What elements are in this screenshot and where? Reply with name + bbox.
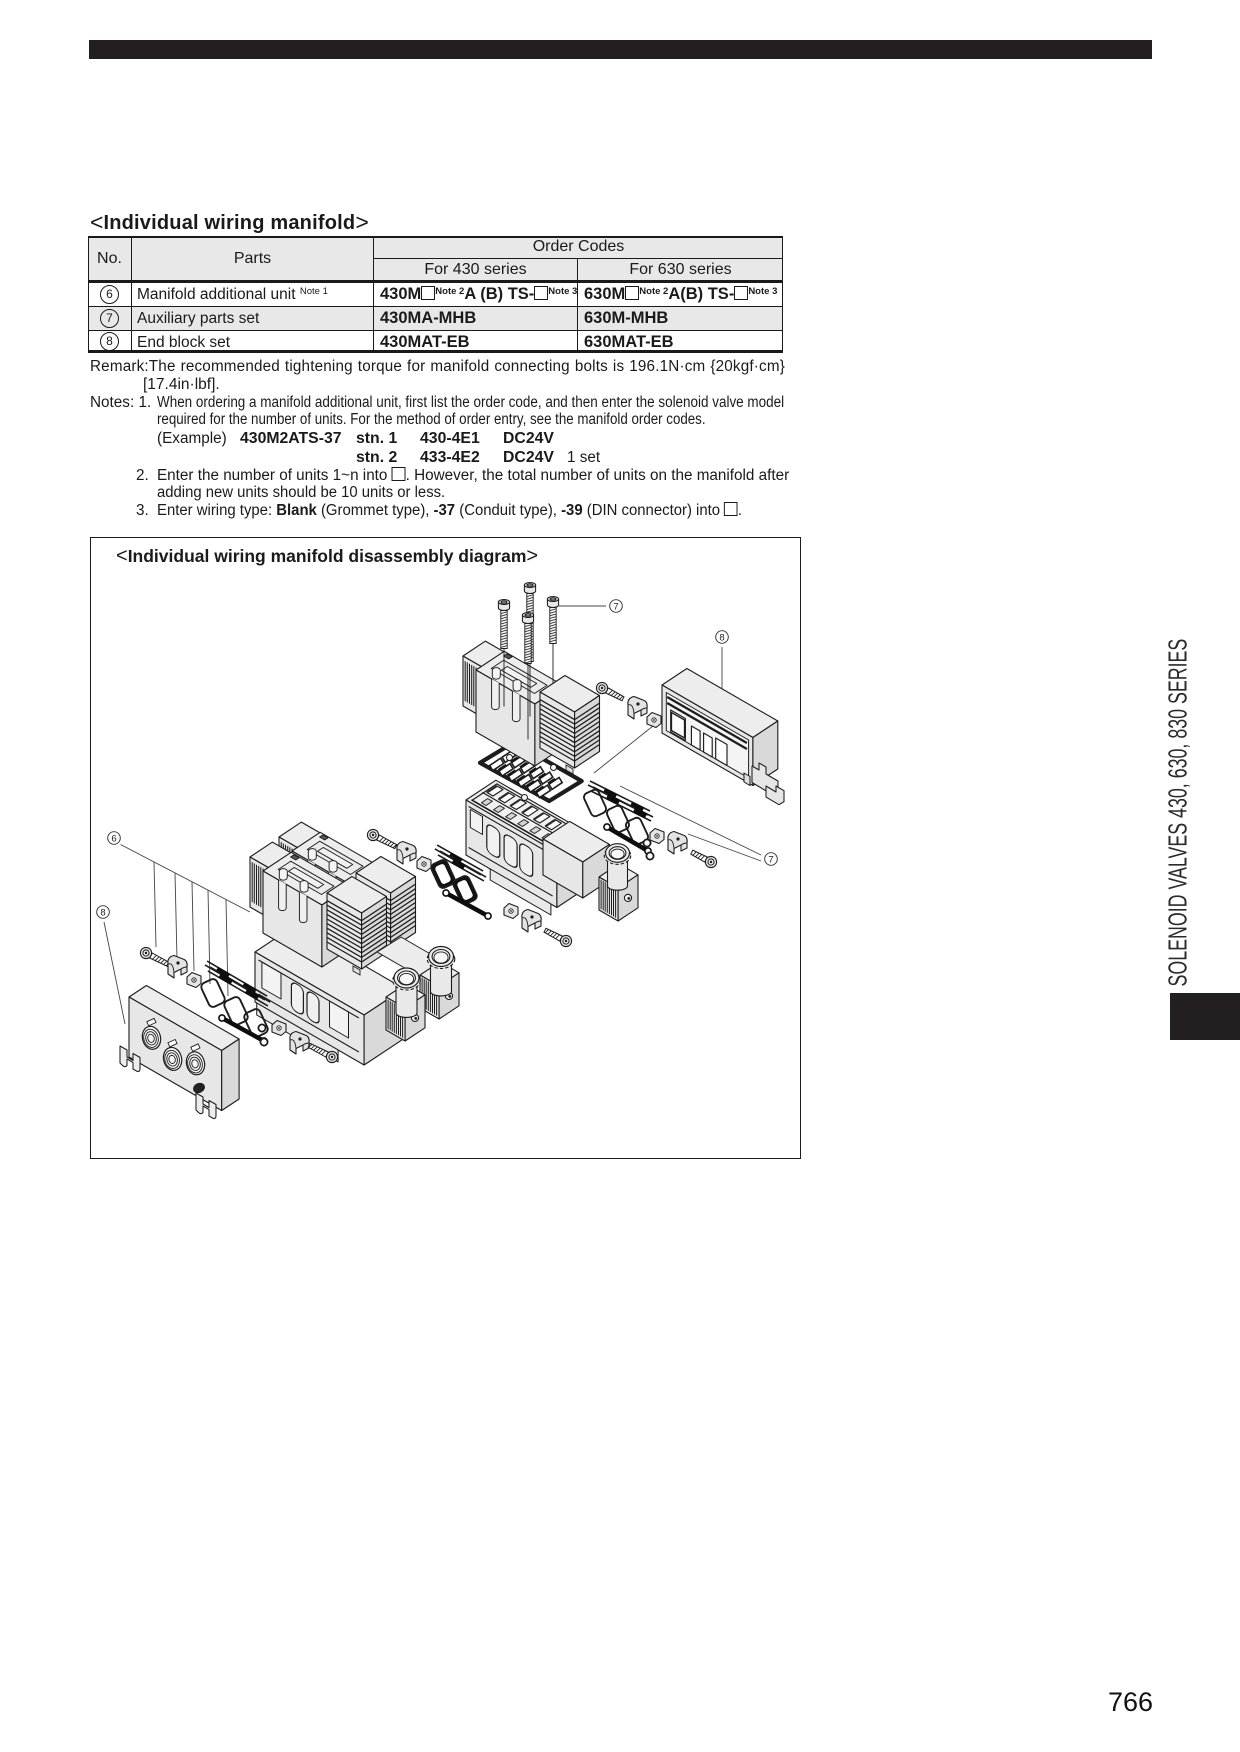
svg-text:7: 7 bbox=[768, 854, 773, 865]
svg-text:8: 8 bbox=[719, 632, 724, 643]
svg-text:7: 7 bbox=[613, 601, 618, 612]
svg-text:8: 8 bbox=[100, 907, 105, 918]
svg-text:6: 6 bbox=[111, 833, 116, 844]
